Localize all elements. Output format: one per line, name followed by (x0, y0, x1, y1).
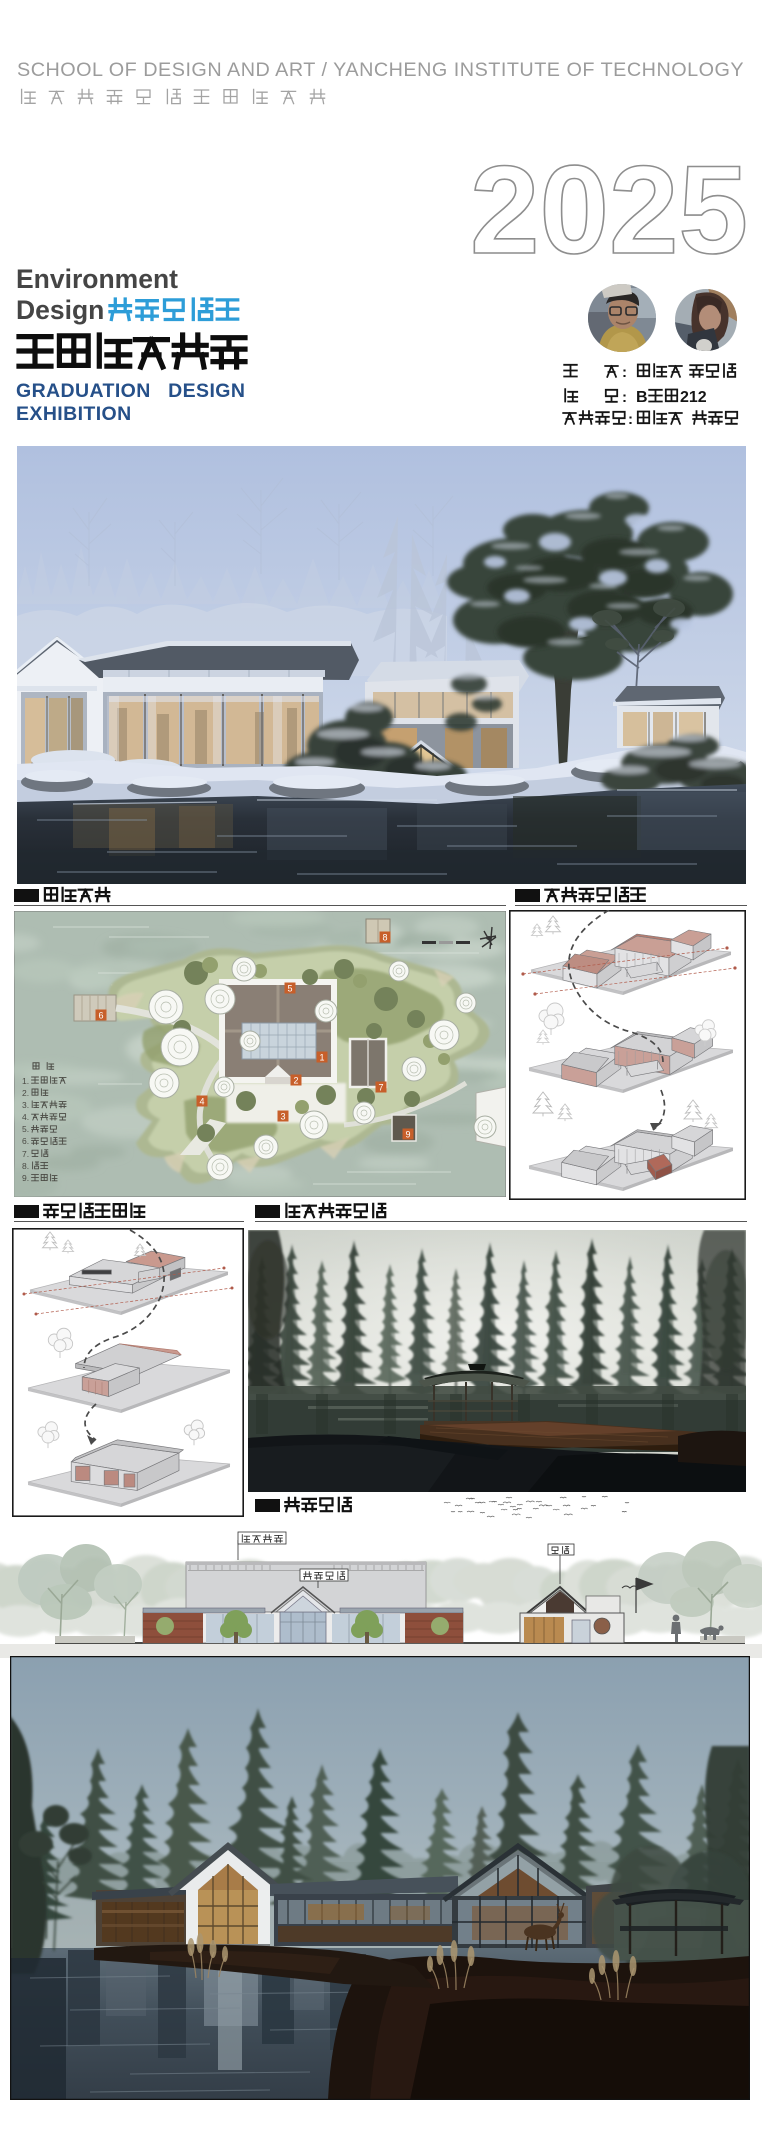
svg-text:9.: 9. (22, 1173, 29, 1183)
svg-text:8: 8 (382, 933, 387, 943)
svg-text:1.: 1. (22, 1076, 29, 1086)
svg-text::: : (622, 364, 627, 381)
svg-text::: : (622, 389, 627, 406)
svg-text:8.: 8. (22, 1161, 29, 1171)
svg-text:9: 9 (405, 1130, 410, 1140)
svg-text:B: B (636, 389, 648, 406)
svg-text:4: 4 (199, 1097, 204, 1107)
svg-text:7.: 7. (22, 1149, 29, 1159)
svg-text:212: 212 (680, 389, 707, 406)
svg-text:7: 7 (378, 1083, 383, 1093)
svg-text:5.: 5. (22, 1124, 29, 1134)
svg-text:2.: 2. (22, 1088, 29, 1098)
svg-text:6.: 6. (22, 1136, 29, 1146)
svg-text:5: 5 (287, 984, 292, 994)
svg-text:3.: 3. (22, 1100, 29, 1110)
svg-text:4.: 4. (22, 1112, 29, 1122)
svg-text::: : (628, 411, 633, 428)
svg-text:6: 6 (98, 1011, 103, 1021)
svg-text:3: 3 (280, 1112, 285, 1122)
svg-text:1: 1 (319, 1053, 324, 1063)
svg-text:2: 2 (293, 1076, 298, 1086)
